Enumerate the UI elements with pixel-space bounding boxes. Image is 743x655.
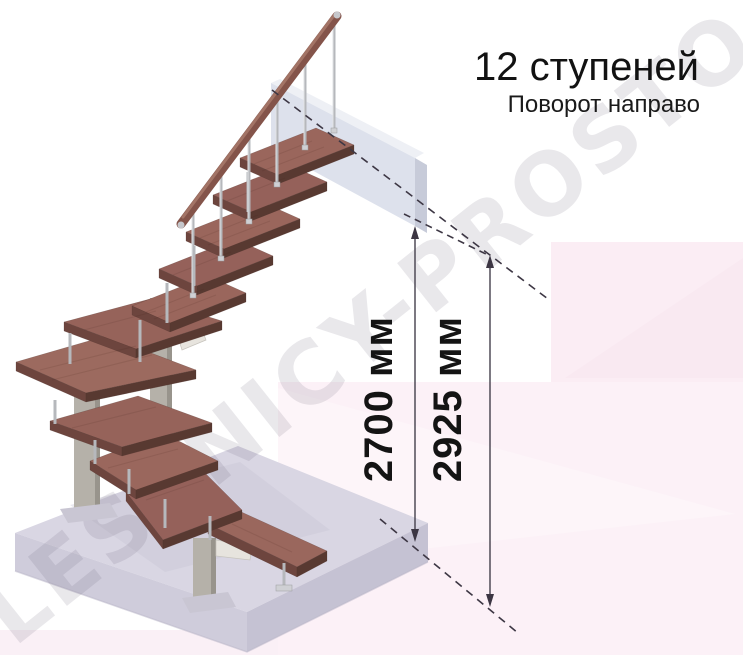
dimension-label-2700: 2700 мм — [357, 316, 401, 482]
staircase-diagram-page: LESTNICY-PROSTO.RU — [0, 0, 743, 655]
page-subtitle: Поворот направо — [508, 91, 700, 118]
rail-end-cap — [178, 222, 185, 229]
page-title: 12 ступеней — [474, 45, 699, 89]
rail-end-cap — [334, 12, 341, 19]
staircase-illustration: LESTNICY-PROSTO.RU — [0, 0, 743, 655]
dimension-label-2925: 2925 мм — [426, 316, 470, 482]
straight-flight — [132, 128, 354, 332]
